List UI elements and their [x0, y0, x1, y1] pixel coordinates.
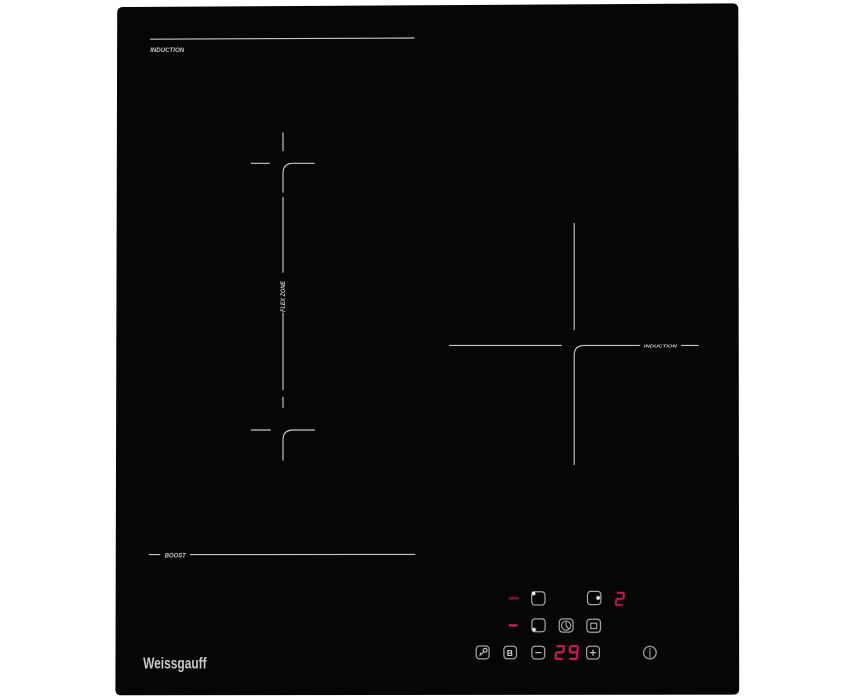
svg-text:INDUCTION: INDUCTION	[150, 47, 184, 54]
svg-text:INDUCTION: INDUCTION	[644, 344, 678, 350]
svg-text:FLEX ZONE: FLEX ZONE	[281, 280, 287, 312]
svg-text:Weissgauff: Weissgauff	[143, 656, 207, 673]
svg-text:BOOST: BOOST	[165, 552, 187, 559]
svg-text:B: B	[507, 648, 513, 658]
